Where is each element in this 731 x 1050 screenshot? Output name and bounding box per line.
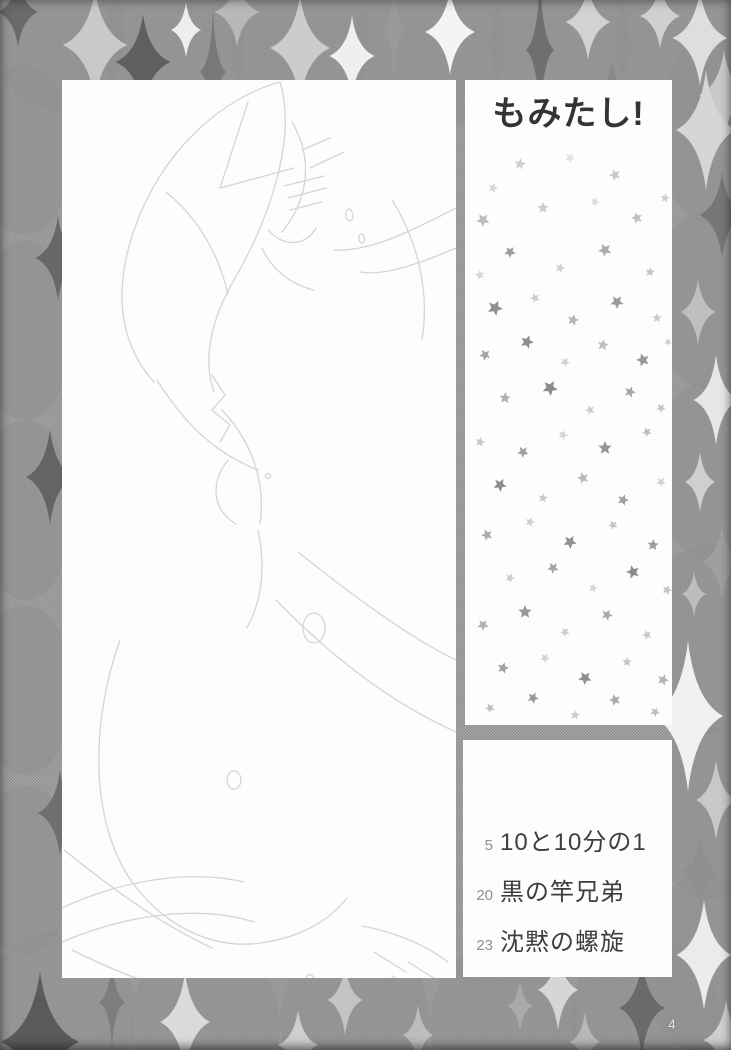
toc-page-number: 20 (471, 881, 493, 911)
toc-entry-title: 10と10分の1 (500, 828, 647, 858)
toc-entry: 23 沈黙の螺旋 (463, 928, 672, 961)
star-field (465, 80, 672, 725)
title-panel: もみたし! (465, 80, 672, 725)
toc-panel: 5 10と10分の1 20 黒の竿兄弟 23 沈黙の螺旋 (463, 740, 672, 977)
sketch-drawing (62, 80, 456, 978)
page-number: 4 (668, 1016, 676, 1032)
toc-entry: 20 黒の竿兄弟 (463, 878, 672, 911)
toc-entry-title: 黒の竿兄弟 (500, 878, 625, 908)
toc-page-number: 5 (471, 831, 493, 861)
toc-page-number: 23 (471, 931, 493, 961)
toc-entry: 5 10と10分の1 (463, 828, 672, 861)
doujin-toc-page: もみたし! 5 10と10分の1 20 黒の竿兄弟 23 沈黙の螺旋 4 (0, 0, 731, 1050)
toc-entry-title: 沈黙の螺旋 (500, 928, 625, 958)
illustration-panel (62, 80, 456, 978)
